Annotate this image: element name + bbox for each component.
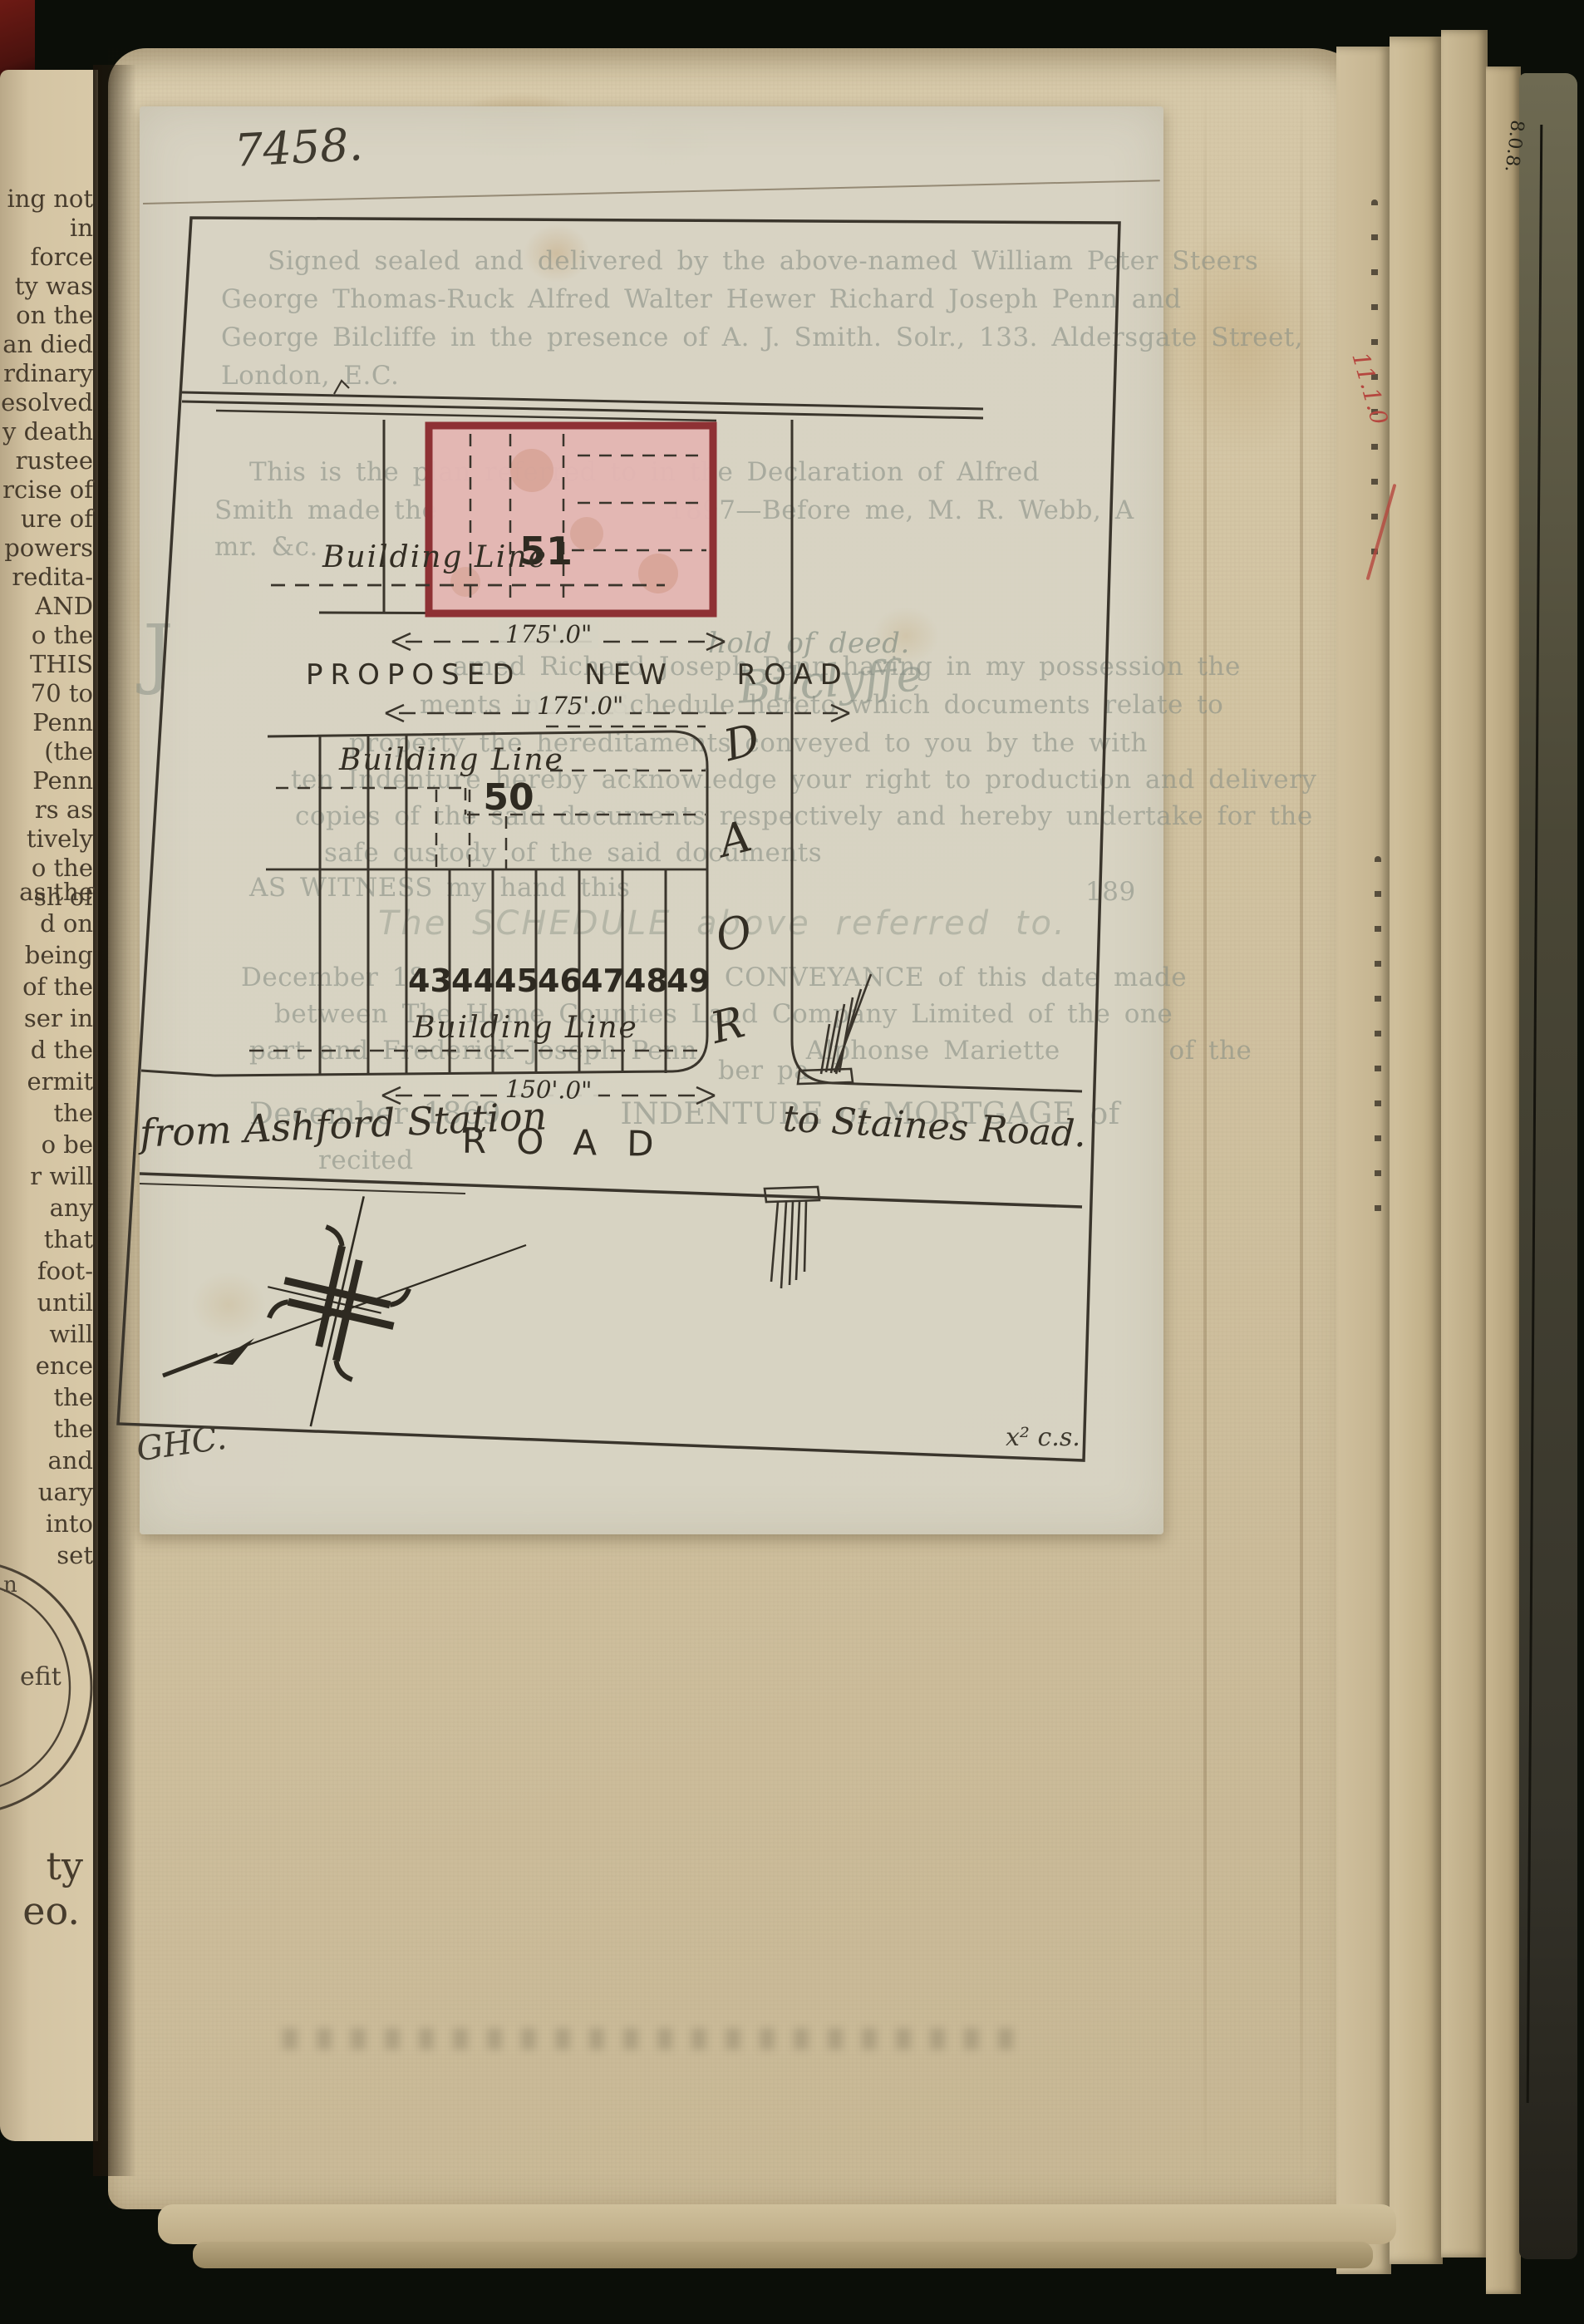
seal-text-fragment: n [3,1573,17,1598]
plot-44-label: 44 [451,963,491,999]
plot-46-label: 46 [538,963,578,999]
proposed-new-road-label: PROPOSED NEW ROAD [306,658,849,692]
compass-rose [163,1180,526,1441]
dimension-175-top-label: 175'.0" [499,620,598,648]
building-line-label-1: Building Line [322,540,548,574]
left-page-bottom-fragment: eo. [0,1888,80,1933]
plot-48-label: 48 [624,963,664,999]
building-line-label-2: Building Line [339,743,564,777]
corner-note: x² c.s. [1006,1423,1080,1452]
page-edge-band [1486,66,1521,2294]
seal-text-fragment: efit [20,1662,61,1691]
building-line-label-3: Building Line [413,1011,638,1045]
bottom-page-edge [193,2242,1373,2268]
perforation-dots [1375,856,1381,1214]
hatch-symbol-upper [798,974,871,1084]
bottom-page-edge [158,2204,1396,2244]
left-page-text-lower: as thed on beingof the ser ind the ermit… [0,876,93,1571]
dimension-175-bottom-label: 175'.0" [530,692,630,720]
reference-number: 7458. [233,118,364,177]
north-tick [334,381,349,394]
plot-50-label: 50 [482,776,535,819]
road-strip-right-edge [792,420,1082,1091]
left-page-text-upper: ing notin force ty wason the an diedrdin… [0,185,93,912]
bleed-through-smudge [283,2028,1031,2050]
page-edge-band [1441,30,1488,2258]
hatch-symbol-lower [765,1187,819,1288]
plot-49-label: 49 [667,963,706,999]
compass-arrowhead [213,1338,254,1365]
page-edge-band [1390,37,1443,2264]
road-horizontal-label: ROAD [462,1120,684,1165]
plot-47-label: 47 [581,963,621,999]
left-page-bottom-fragment: ty [0,1844,83,1888]
photographed-deed-page: Signed sealed and delivered by the above… [0,0,1584,2324]
plot-43-label: 43 [408,963,448,999]
plot-45-label: 45 [494,963,534,999]
